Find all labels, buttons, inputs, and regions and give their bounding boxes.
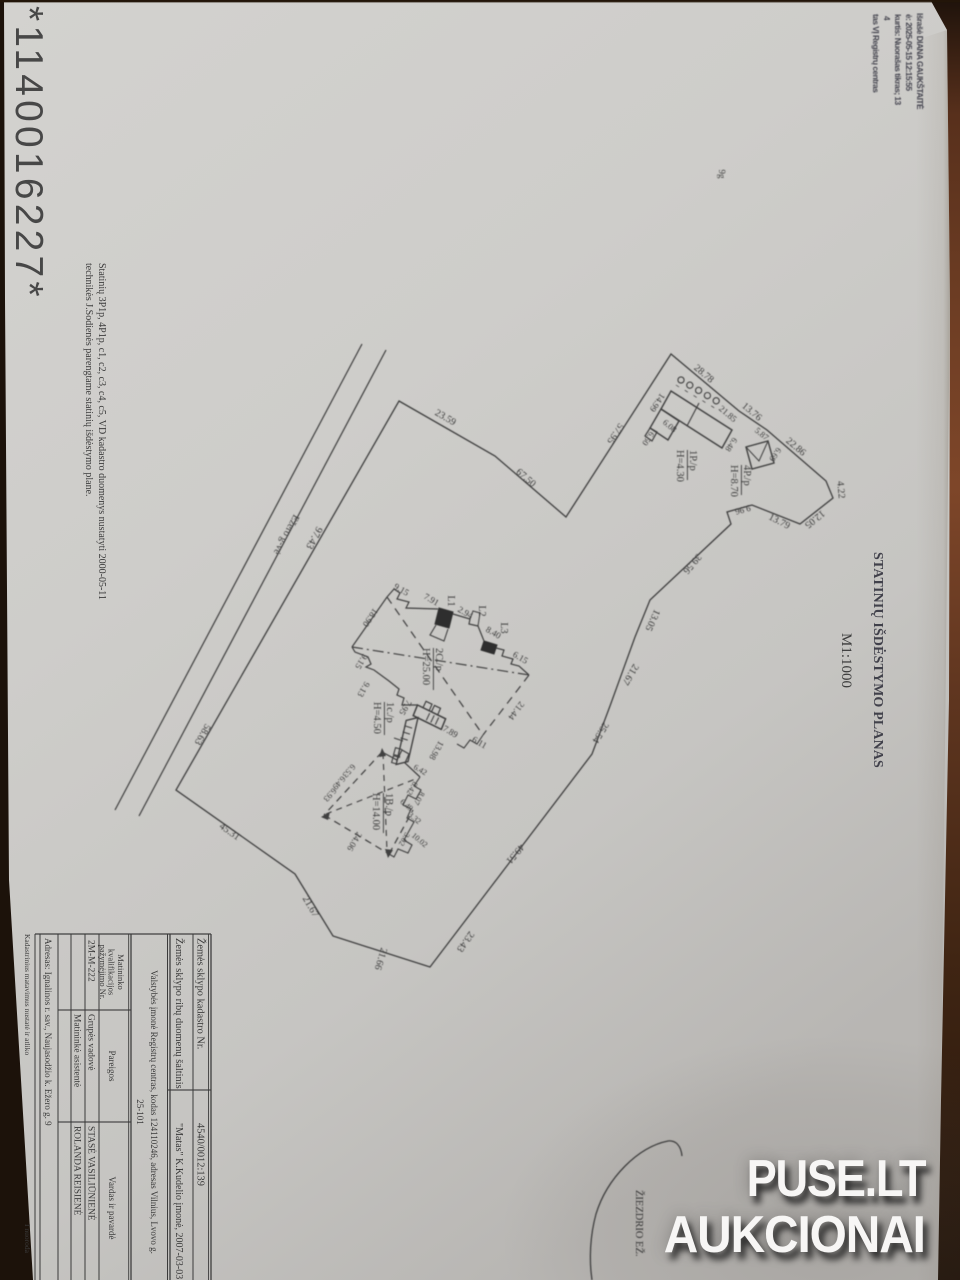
svg-text:M1:1000: M1:1000 [838, 633, 854, 688]
svg-text:L2: L2 [476, 605, 487, 616]
svg-text:STATINIŲ IŠDĖSTYMO PLANAS: STATINIŲ IŠDĖSTYMO PLANAS [870, 552, 887, 768]
svg-text:9g: 9g [717, 170, 727, 180]
svg-text:I nuoroda: I nuoroda [23, 1224, 32, 1254]
svg-text:1c./p: 1c./p [384, 702, 395, 723]
svg-text:H=25.00: H=25.00 [420, 648, 431, 685]
svg-text:4P./p: 4P./p [741, 465, 752, 486]
svg-text:Išrašė DIANA GAUKŠTAITĖ: Išrašė DIANA GAUKŠTAITĖ [915, 13, 926, 110]
svg-text:kurtis: Nuorašas tikras; 13: kurtis: Nuorašas tikras; 13 [893, 14, 902, 106]
svg-text:*1140016227*: *1140016227* [7, 6, 50, 301]
svg-text:Statinių 3P1p, 4P1p, c1, c2, c: Statinių 3P1p, 4P1p, c1, c2, c3, c4, c5,… [96, 263, 107, 600]
svg-text:Grupės vadovė: Grupės vadovė [86, 1014, 96, 1071]
svg-text:Pareigos: Pareigos [107, 1051, 117, 1082]
svg-text:2M-M-222: 2M-M-222 [86, 940, 96, 982]
svg-text:Matininko: Matininko [116, 954, 126, 989]
svg-text:25-101: 25-101 [135, 1099, 145, 1125]
svg-text:STASĖ VASILIŪNIENĖ: STASĖ VASILIŪNIENĖ [86, 1126, 98, 1221]
svg-text:H=4.50: H=4.50 [371, 702, 382, 734]
svg-text:4540/0012:139: 4540/0012:139 [195, 1123, 206, 1186]
svg-text:Vardas ir pavardė: Vardas ir pavardė [107, 1177, 117, 1240]
svg-text:Valstybės įmonė Registrų centr: Valstybės įmonė Registrų centras, kodas … [149, 970, 159, 1254]
svg-text:4.22: 4.22 [834, 481, 846, 499]
svg-text:Žemės sklypo ribų duomenų šalt: Žemės sklypo ribų duomenų šaltinis [173, 938, 185, 1089]
svg-text:1P./p: 1P./p [687, 450, 698, 471]
svg-text:L3: L3 [498, 622, 509, 633]
svg-text:2C./p: 2C./p [433, 648, 444, 671]
svg-text:technikės J.Sodienės parengtam: technikės J.Sodienės parengtame statinių… [83, 263, 94, 497]
svg-text:tas VĮ Registrų centras: tas VĮ Registrų centras [871, 14, 880, 93]
svg-text:H=8.70: H=8.70 [728, 465, 739, 497]
svg-text:ŽIEZDRIO EŽ.: ŽIEZDRIO EŽ. [633, 1190, 645, 1256]
svg-text:pažymėjimo Nr.: pažymėjimo Nr. [98, 945, 108, 1000]
svg-text:Adresas: Ignalinos r. sav., Na: Adresas: Ignalinos r. sav., Naujasodžio … [43, 938, 53, 1126]
svg-text:ROLANDA REISIENĖ: ROLANDA REISIENĖ [72, 1126, 84, 1216]
svg-text:H=14.00: H=14.00 [370, 793, 381, 830]
svg-text:Kadastrinius matavimus nustatė: Kadastrinius matavimus nustatė ir atliko [23, 934, 32, 1055]
svg-text:Matininkė asistentė: Matininkė asistentė [72, 1014, 82, 1087]
svg-text:ė: 2025-05-15 12:15:55: ė: 2025-05-15 12:15:55 [904, 14, 913, 91]
svg-text:"Matas" K.Kudelio įmonė, 2007-: "Matas" K.Kudelio įmonė, 2007-03-03 [173, 1123, 184, 1279]
svg-text:H=4.30: H=4.30 [674, 450, 685, 482]
svg-text:Žemės sklypo kadastro Nr.: Žemės sklypo kadastro Nr. [195, 938, 207, 1049]
svg-text:L1: L1 [445, 595, 456, 606]
svg-text:1B./p: 1B./p [383, 793, 394, 816]
